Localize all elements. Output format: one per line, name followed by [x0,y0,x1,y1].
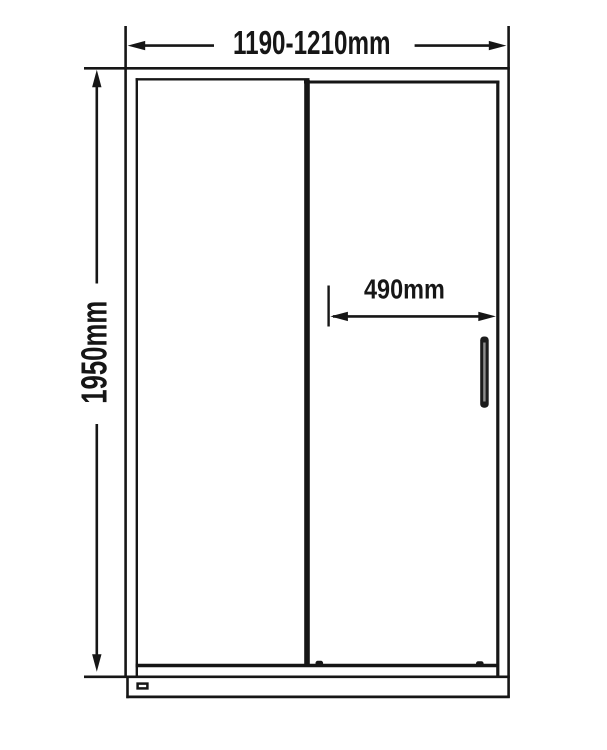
svg-text:1950mm: 1950mm [74,301,115,404]
svg-text:490mm: 490mm [364,274,445,305]
svg-text:1190-1210mm: 1190-1210mm [233,24,391,61]
